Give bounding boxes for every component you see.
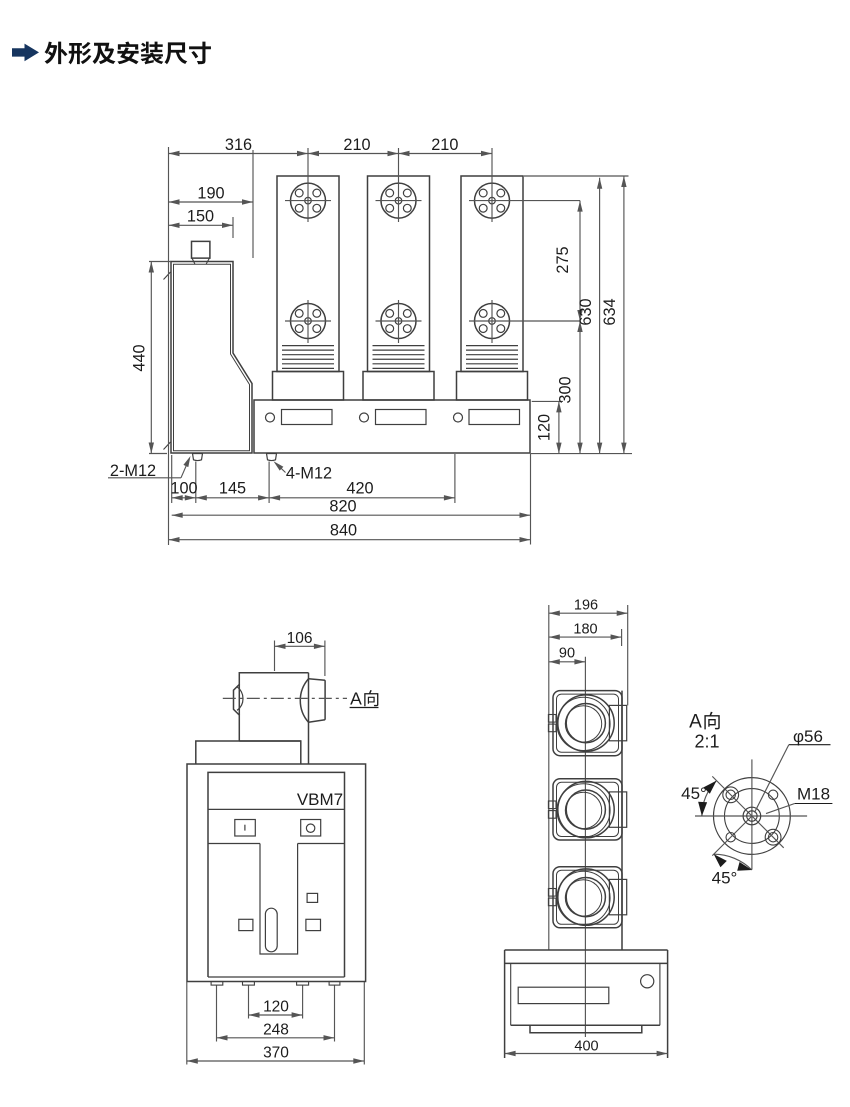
svg-text:420: 420 bbox=[346, 480, 373, 498]
svg-text:M18: M18 bbox=[797, 784, 830, 803]
svg-text:196: 196 bbox=[574, 598, 598, 614]
svg-text:275: 275 bbox=[554, 246, 572, 273]
svg-text:248: 248 bbox=[263, 1022, 289, 1039]
svg-text:316: 316 bbox=[225, 136, 252, 154]
svg-text:150: 150 bbox=[187, 208, 214, 226]
svg-text:45°: 45° bbox=[712, 869, 738, 888]
svg-text:2:1: 2:1 bbox=[694, 732, 719, 752]
svg-text:VBM7: VBM7 bbox=[297, 790, 343, 809]
svg-text:A: A bbox=[350, 689, 362, 709]
svg-text:90: 90 bbox=[559, 646, 575, 662]
svg-text:190: 190 bbox=[197, 185, 224, 203]
svg-text:210: 210 bbox=[431, 136, 458, 154]
svg-text:106: 106 bbox=[287, 630, 313, 647]
svg-text:820: 820 bbox=[329, 498, 356, 516]
svg-text:370: 370 bbox=[263, 1045, 289, 1062]
svg-text:400: 400 bbox=[574, 1039, 598, 1055]
svg-text:45°: 45° bbox=[681, 784, 707, 803]
svg-text:180: 180 bbox=[573, 622, 597, 638]
svg-text:120: 120 bbox=[536, 414, 554, 441]
svg-text:300: 300 bbox=[557, 376, 575, 403]
svg-text:φ56: φ56 bbox=[793, 727, 823, 746]
svg-text:210: 210 bbox=[343, 136, 370, 154]
svg-text:4-M12: 4-M12 bbox=[286, 465, 332, 483]
svg-text:A: A bbox=[689, 712, 702, 733]
svg-text:840: 840 bbox=[330, 522, 357, 540]
svg-text:440: 440 bbox=[131, 344, 149, 371]
svg-text:145: 145 bbox=[219, 480, 246, 498]
svg-text:120: 120 bbox=[263, 999, 289, 1016]
svg-text:100: 100 bbox=[170, 480, 197, 498]
svg-text:634: 634 bbox=[601, 298, 619, 325]
svg-text:630: 630 bbox=[577, 298, 595, 325]
